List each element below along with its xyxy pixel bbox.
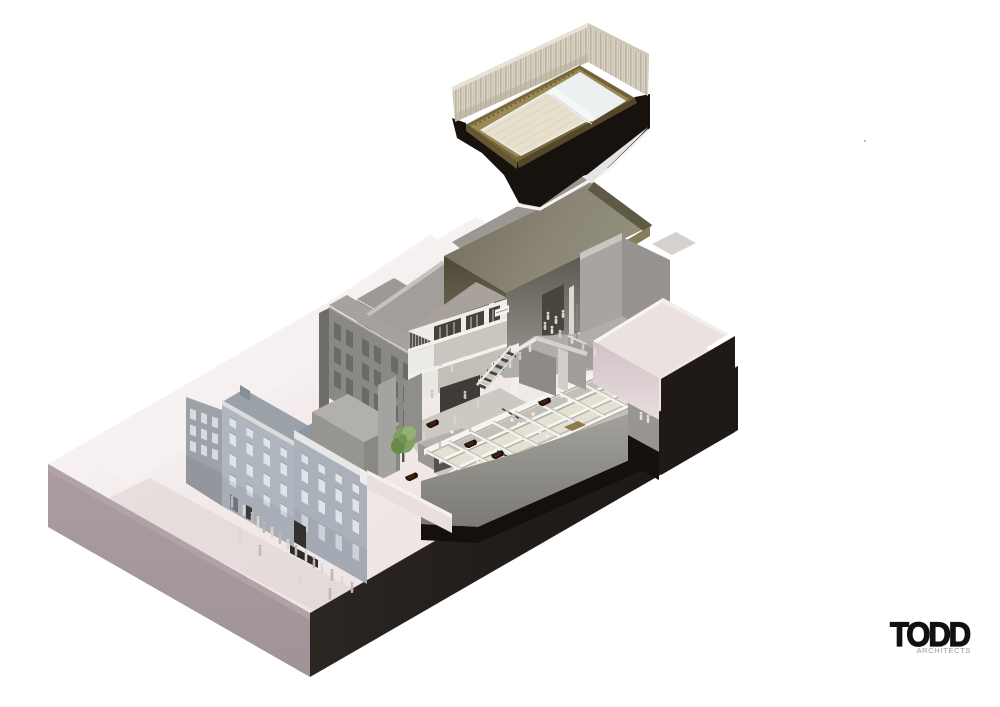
svg-text:ARCHITECTS: ARCHITECTS — [916, 646, 971, 655]
